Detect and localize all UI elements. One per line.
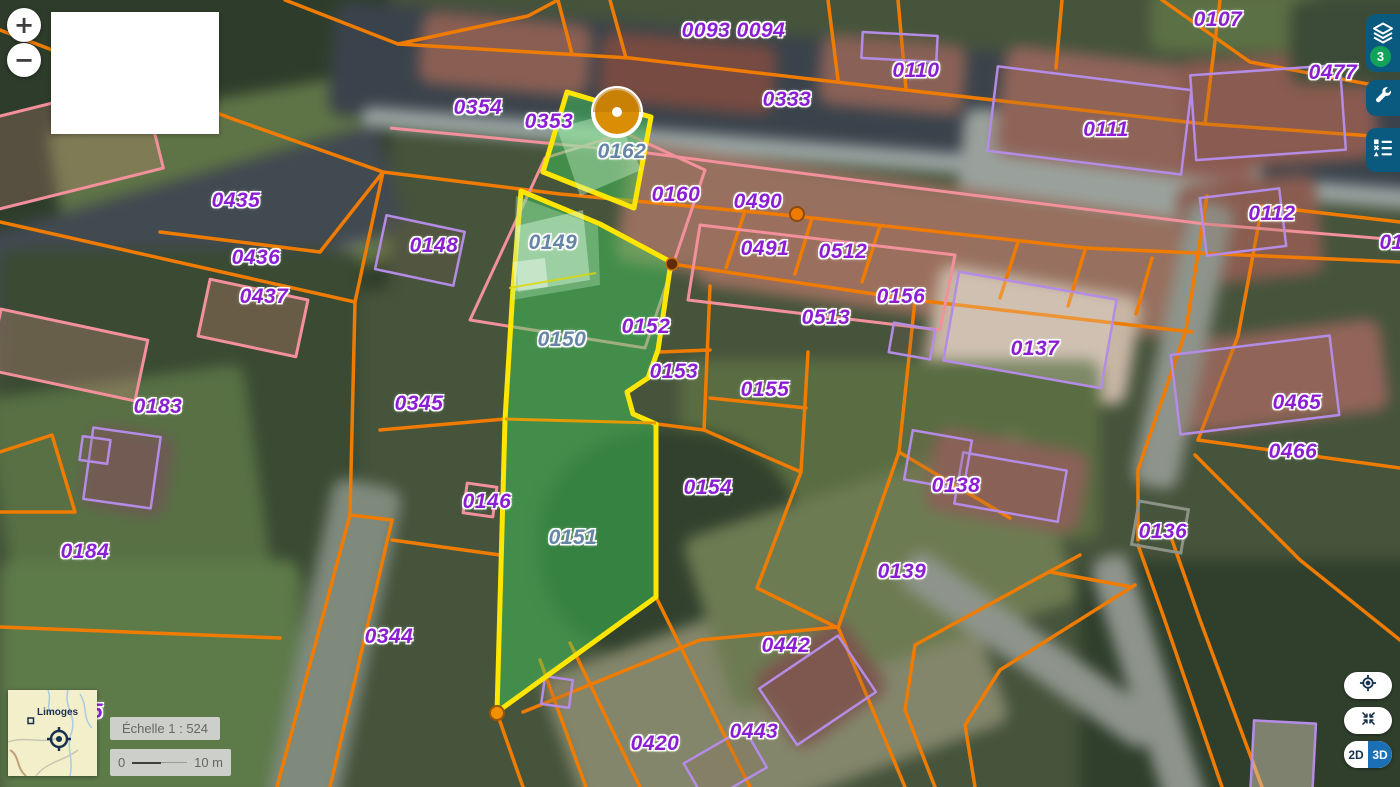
parcel-label-0150[interactable]: 0150 — [538, 328, 587, 352]
blank-info-panel — [51, 12, 219, 134]
parcel-label-0465[interactable]: 0465 — [1273, 391, 1322, 415]
parcel-label-0093[interactable]: 0093 — [682, 19, 731, 43]
parcel-label-0154[interactable]: 0154 — [684, 476, 733, 500]
parcel-label-0149[interactable]: 0149 — [529, 231, 578, 255]
zoom-in-button[interactable]: + — [7, 8, 41, 42]
minus-icon: − — [14, 46, 34, 74]
parcel-label-0138[interactable]: 0138 — [932, 474, 981, 498]
parcel-label-0435[interactable]: 0435 — [212, 189, 261, 213]
parcel-label-0139[interactable]: 0139 — [878, 560, 927, 584]
minimap-town-marker — [28, 718, 34, 724]
parcel-label-0491[interactable]: 0491 — [741, 237, 790, 261]
parcel-label-0490[interactable]: 0490 — [734, 190, 783, 214]
parcel-label-0152[interactable]: 0152 — [622, 315, 671, 339]
wrench-icon — [1373, 86, 1393, 111]
parcel-label-0162[interactable]: 0162 — [598, 140, 647, 164]
parcel-label-0112[interactable]: 0112 — [1248, 202, 1295, 226]
parcel-label-0156[interactable]: 0156 — [877, 285, 926, 309]
poi-marker[interactable] — [593, 88, 641, 136]
scale-ratio-label: Échelle 1 : 524 — [110, 717, 220, 740]
parcel-label-0111[interactable]: 0111 — [1083, 118, 1129, 142]
parcel-label-0442[interactable]: 0442 — [762, 634, 811, 658]
parcel-label-0136[interactable]: 0136 — [1139, 520, 1188, 544]
scale-bar-start: 0 — [118, 755, 125, 770]
legend-button[interactable] — [1366, 128, 1400, 172]
parcel-label-0437[interactable]: 0437 — [240, 285, 289, 309]
legend-icon — [1371, 136, 1395, 165]
building-outlines-purple — [79, 32, 1345, 787]
parcel-label-0466[interactable]: 0466 — [1269, 440, 1318, 464]
view-2d-button[interactable]: 2D — [1344, 741, 1368, 768]
parcel-label-0153[interactable]: 0153 — [650, 360, 699, 384]
parcel-label-0107[interactable]: 0107 — [1194, 8, 1243, 32]
parcel-label-0420[interactable]: 0420 — [631, 732, 680, 756]
scale-bar-line — [132, 762, 187, 764]
parcel-label-0148[interactable]: 0148 — [410, 234, 459, 258]
scale-bar: 0 10 m — [110, 749, 231, 776]
parcel-label-0512[interactable]: 0512 — [819, 240, 868, 264]
compress-button[interactable] — [1344, 707, 1392, 734]
zoom-out-button[interactable]: − — [7, 43, 41, 77]
minimap-city-label: Limoges — [37, 707, 79, 718]
locate-button[interactable] — [1344, 672, 1392, 699]
parcel-label-0110[interactable]: 0110 — [892, 59, 939, 83]
parcel-label-0436[interactable]: 0436 — [232, 246, 281, 270]
parcel-label-0513[interactable]: 0513 — [802, 306, 851, 330]
parcel-label-0146[interactable]: 0146 — [463, 490, 512, 514]
parcel-label-0354[interactable]: 0354 — [454, 96, 503, 120]
parcel-label-0477[interactable]: 0477 — [1309, 61, 1358, 85]
parcel-label-0155[interactable]: 0155 — [741, 378, 790, 402]
parcel-label-0443[interactable]: 0443 — [730, 720, 779, 744]
scale-bar-end: 10 m — [194, 755, 223, 770]
parcel-label-0151[interactable]: 0151 — [549, 526, 598, 550]
parcel-label-0160[interactable]: 0160 — [652, 183, 701, 207]
parcel-label-0353[interactable]: 0353 — [525, 110, 574, 134]
parcel-label-0344[interactable]: 0344 — [365, 625, 414, 649]
overview-minimap[interactable]: Limoges — [8, 690, 97, 776]
parcel-label-partial-1[interactable]: 011 — [1380, 231, 1400, 255]
parcel-label-0137[interactable]: 0137 — [1011, 337, 1060, 361]
parcel-label-0333[interactable]: 0333 — [763, 88, 812, 112]
parcel-label-0345[interactable]: 0345 — [395, 392, 444, 416]
selected-parcels[interactable] — [497, 92, 671, 712]
locate-icon — [1357, 672, 1379, 699]
map-viewport[interactable]: 0093009401070110033301110477035403530162… — [0, 0, 1400, 787]
layers-count-badge: 3 — [1370, 46, 1391, 67]
view-mode-toggle[interactable]: 2D 3D — [1344, 741, 1392, 768]
compress-icon — [1359, 709, 1378, 733]
tools-button[interactable] — [1366, 80, 1400, 116]
parcel-label-0094[interactable]: 0094 — [737, 19, 786, 43]
parcel-label-0184[interactable]: 0184 — [61, 540, 110, 564]
plus-icon: + — [14, 11, 34, 39]
layers-button[interactable]: 3 — [1366, 14, 1400, 72]
parcel-label-0183[interactable]: 0183 — [134, 395, 183, 419]
